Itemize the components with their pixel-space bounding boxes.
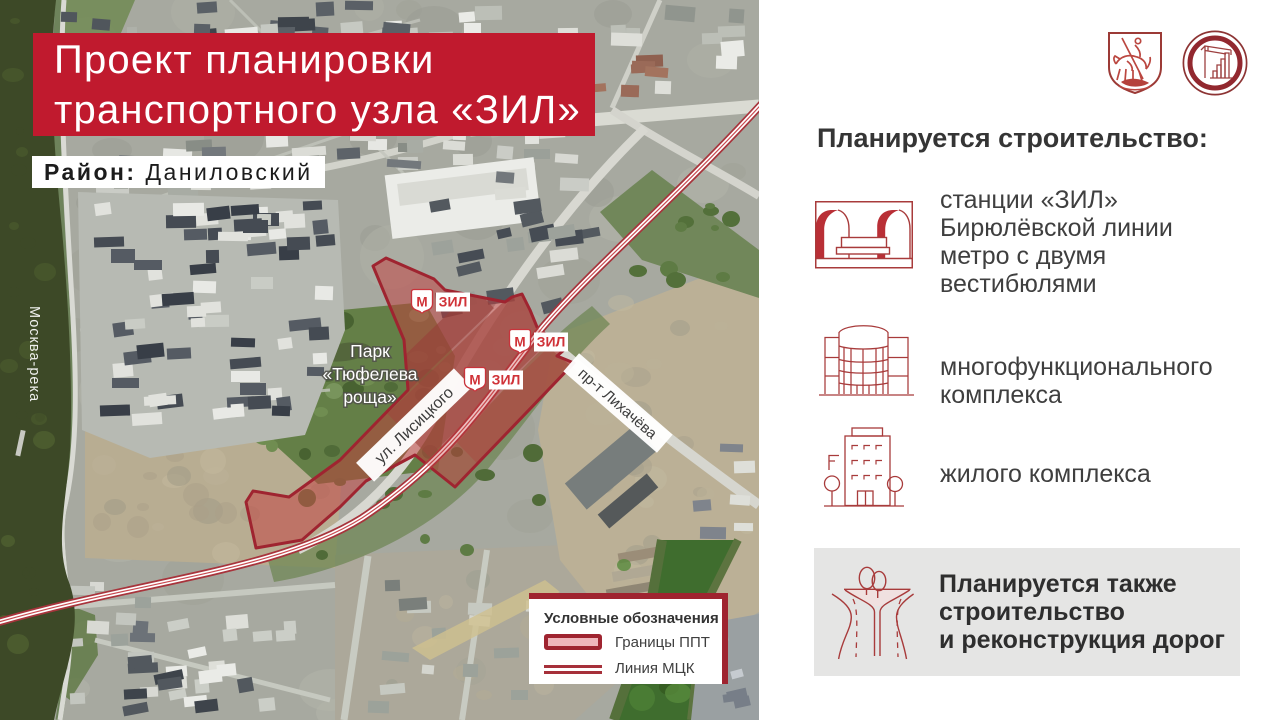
svg-text:М: М bbox=[416, 295, 427, 310]
svg-text:ЗИЛ: ЗИЛ bbox=[537, 334, 566, 350]
svg-text:Москва-река: Москва-река bbox=[26, 306, 42, 402]
svg-text:Парк: Парк bbox=[350, 341, 390, 361]
svg-text:ЗИЛ: ЗИЛ bbox=[492, 372, 521, 388]
svg-text:ЗИЛ: ЗИЛ bbox=[439, 294, 468, 310]
svg-text:М: М bbox=[469, 373, 480, 388]
svg-text:роща»: роща» bbox=[343, 387, 397, 407]
svg-text:М: М bbox=[514, 335, 525, 350]
svg-text:«Тюфелева: «Тюфелева bbox=[322, 364, 417, 384]
